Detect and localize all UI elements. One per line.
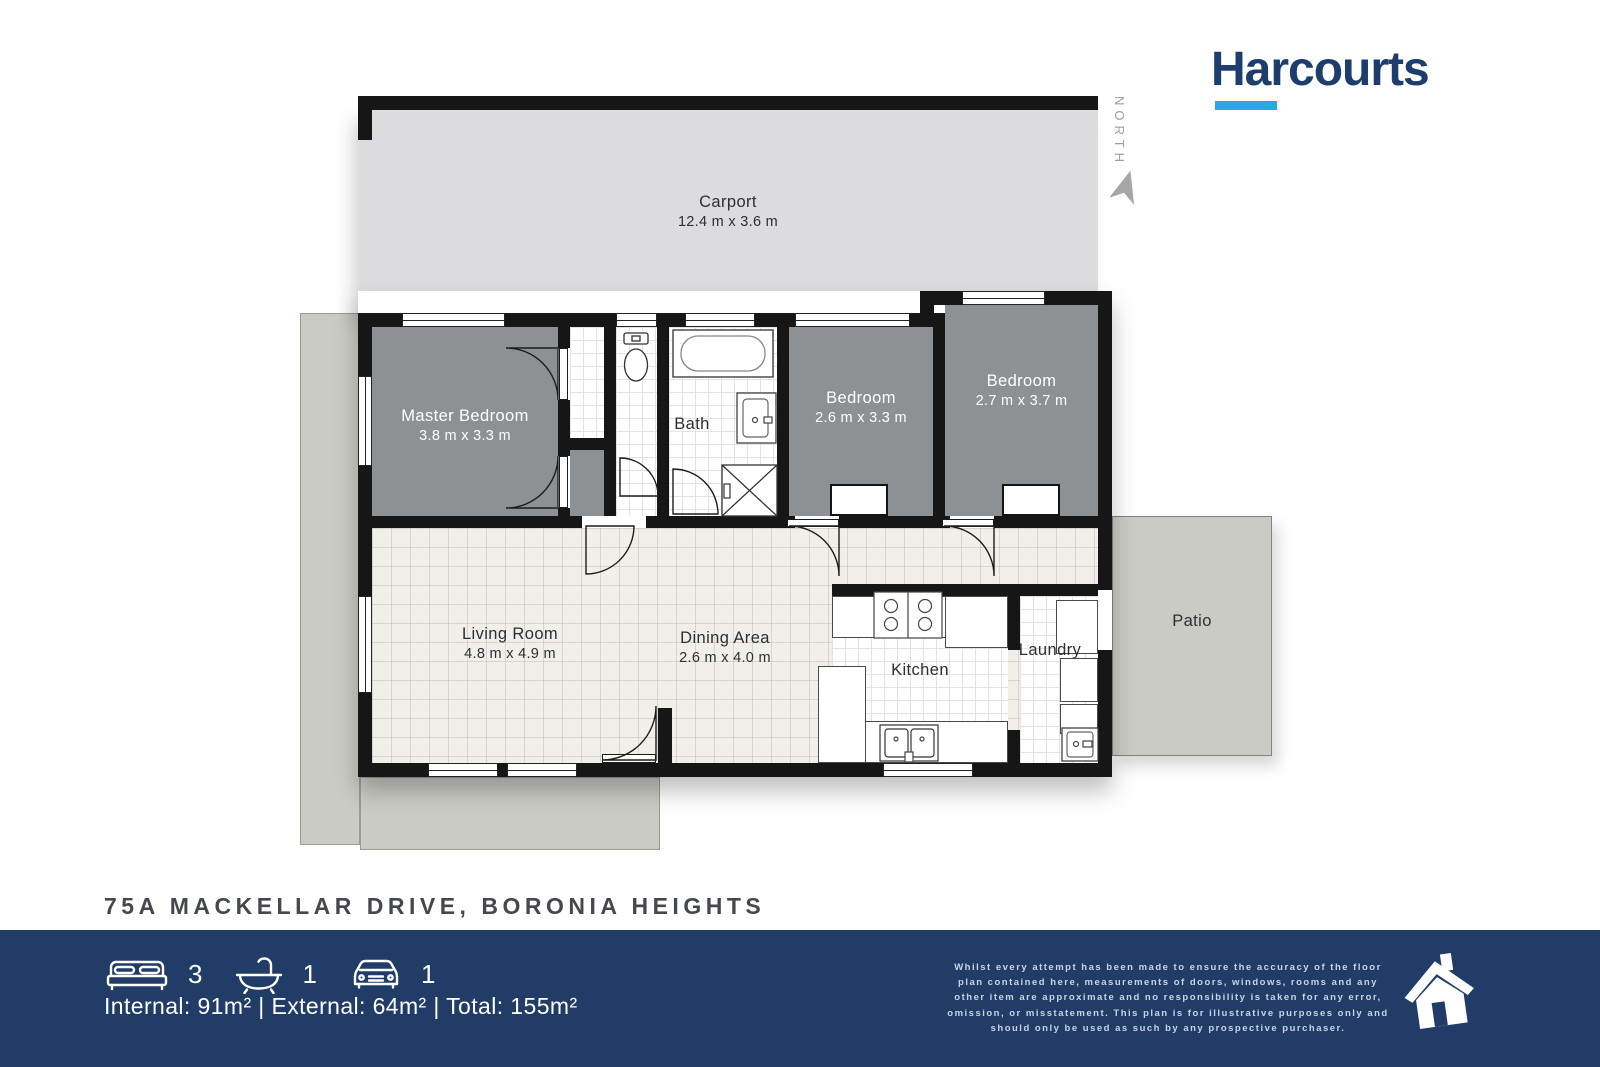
wall [658, 708, 672, 763]
room-name: Bedroom [789, 388, 933, 409]
wall [933, 313, 945, 516]
wall [839, 516, 950, 528]
robe [830, 484, 888, 516]
bed-icon [104, 955, 170, 993]
wc-floor [616, 327, 657, 516]
house-icon [1398, 946, 1480, 1036]
wall [558, 327, 570, 348]
master-bedroom-label: Master Bedroom 3.8 m x 3.3 m [372, 406, 558, 446]
laundry-appliance [1060, 704, 1098, 734]
kitchen-label: Kitchen [832, 660, 1008, 681]
laundry-appliance [1060, 658, 1098, 702]
car-count: 1 [421, 959, 435, 990]
room-name: Living Room [390, 624, 630, 645]
wall [570, 438, 604, 450]
wall [604, 327, 616, 516]
bed-count: 3 [188, 959, 202, 990]
door-leaf [559, 348, 568, 400]
window [616, 313, 657, 327]
room-dims: 2.7 m x 3.7 m [945, 392, 1098, 411]
room-dims: 3.8 m x 3.3 m [372, 427, 558, 446]
front-door-leaf [602, 754, 656, 763]
robe [1002, 484, 1060, 516]
floor-plan-page: Harcourts NORTH [0, 0, 1600, 1067]
window [507, 763, 577, 777]
room-dims: 2.6 m x 3.3 m [789, 409, 933, 428]
patio-label: Patio [1112, 611, 1272, 632]
window [795, 313, 910, 327]
hall-floor [570, 327, 604, 438]
door-leaf [559, 456, 568, 508]
bath-icon [234, 954, 284, 994]
window [402, 313, 505, 327]
room-name: Bath [662, 414, 722, 435]
bath-label: Bath [662, 414, 722, 435]
carport-label: Carport 12.4 m x 3.6 m [358, 192, 1098, 232]
living-room-label: Living Room 4.8 m x 4.9 m [390, 624, 630, 664]
room-name: Patio [1112, 611, 1272, 632]
room-dims: 2.6 m x 4.0 m [620, 649, 830, 668]
wall [777, 327, 789, 516]
wall [1098, 305, 1112, 763]
bedroom-right-label: Bedroom 2.7 m x 3.7 m [945, 371, 1098, 411]
side-path-area [300, 313, 360, 845]
area-summary: Internal: 91m² | External: 64m² | Total:… [104, 993, 578, 1020]
wall [832, 584, 1098, 596]
wall [994, 516, 1112, 528]
room-name: Master Bedroom [372, 406, 558, 427]
door-leaf [787, 519, 839, 527]
property-stats: 3 1 1 [104, 954, 449, 994]
room-name: Carport [358, 192, 1098, 213]
wall [358, 96, 1098, 110]
room-name: Laundry [990, 640, 1110, 661]
wall [558, 400, 570, 456]
room-dims: 4.8 m x 4.9 m [390, 645, 630, 664]
footer-bar: 3 1 1 [0, 930, 1600, 1067]
room-name: Bedroom [945, 371, 1098, 392]
wall [372, 516, 582, 528]
room-dims: 12.4 m x 3.6 m [358, 213, 1098, 232]
patio-area [1112, 516, 1272, 756]
room-name: Dining Area [620, 628, 830, 649]
wall [1008, 730, 1020, 763]
window [883, 763, 973, 777]
room-name: Kitchen [832, 660, 1008, 681]
window [685, 313, 755, 327]
door-leaf [942, 519, 994, 527]
wall [358, 96, 372, 140]
bath-count: 1 [302, 959, 316, 990]
wall [920, 291, 934, 327]
window [358, 376, 372, 466]
wall [646, 516, 795, 528]
window [962, 291, 1045, 305]
bedroom-middle-label: Bedroom 2.6 m x 3.3 m [789, 388, 933, 428]
property-address: 75A MACKELLAR DRIVE, BORONIA HEIGHTS [104, 893, 765, 920]
window [428, 763, 498, 777]
car-icon [349, 955, 403, 993]
window [358, 596, 372, 693]
disclaimer-text: Whilst every attempt has been made to en… [942, 960, 1394, 1036]
laundry-label: Laundry [990, 640, 1110, 661]
dining-area-label: Dining Area 2.6 m x 4.0 m [620, 628, 830, 668]
floor-plan: Carport 12.4 m x 3.6 m Master Bedroom 3.… [290, 88, 1280, 860]
robe-nook-floor [570, 450, 604, 516]
front-porch-area [360, 777, 660, 850]
